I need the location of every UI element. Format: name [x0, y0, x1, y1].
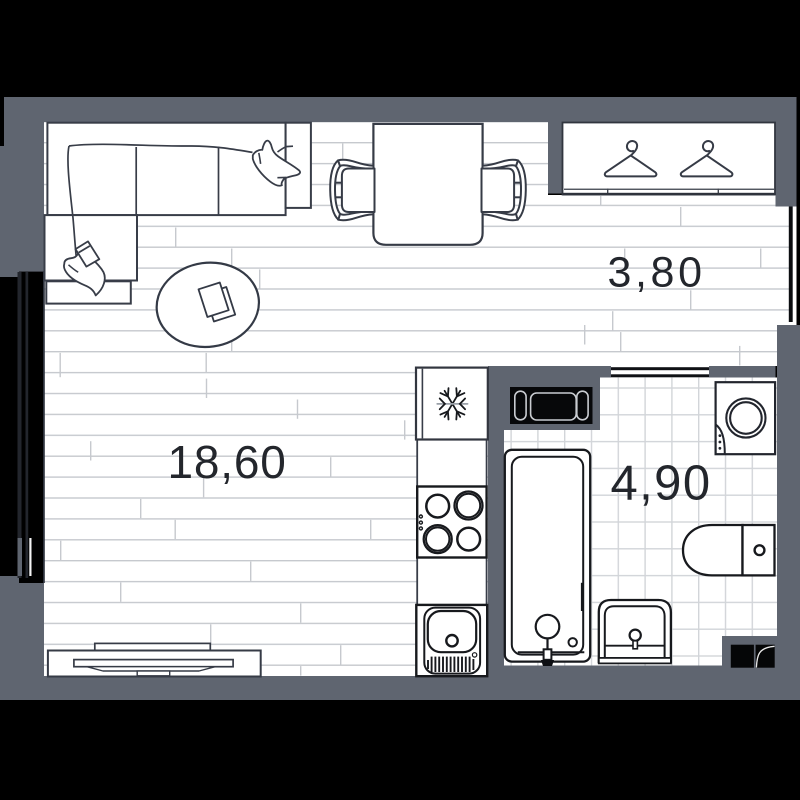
svg-text:18,60: 18,60: [168, 436, 287, 488]
svg-text:3,80: 3,80: [608, 249, 706, 297]
svg-text:4,90: 4,90: [611, 457, 712, 511]
